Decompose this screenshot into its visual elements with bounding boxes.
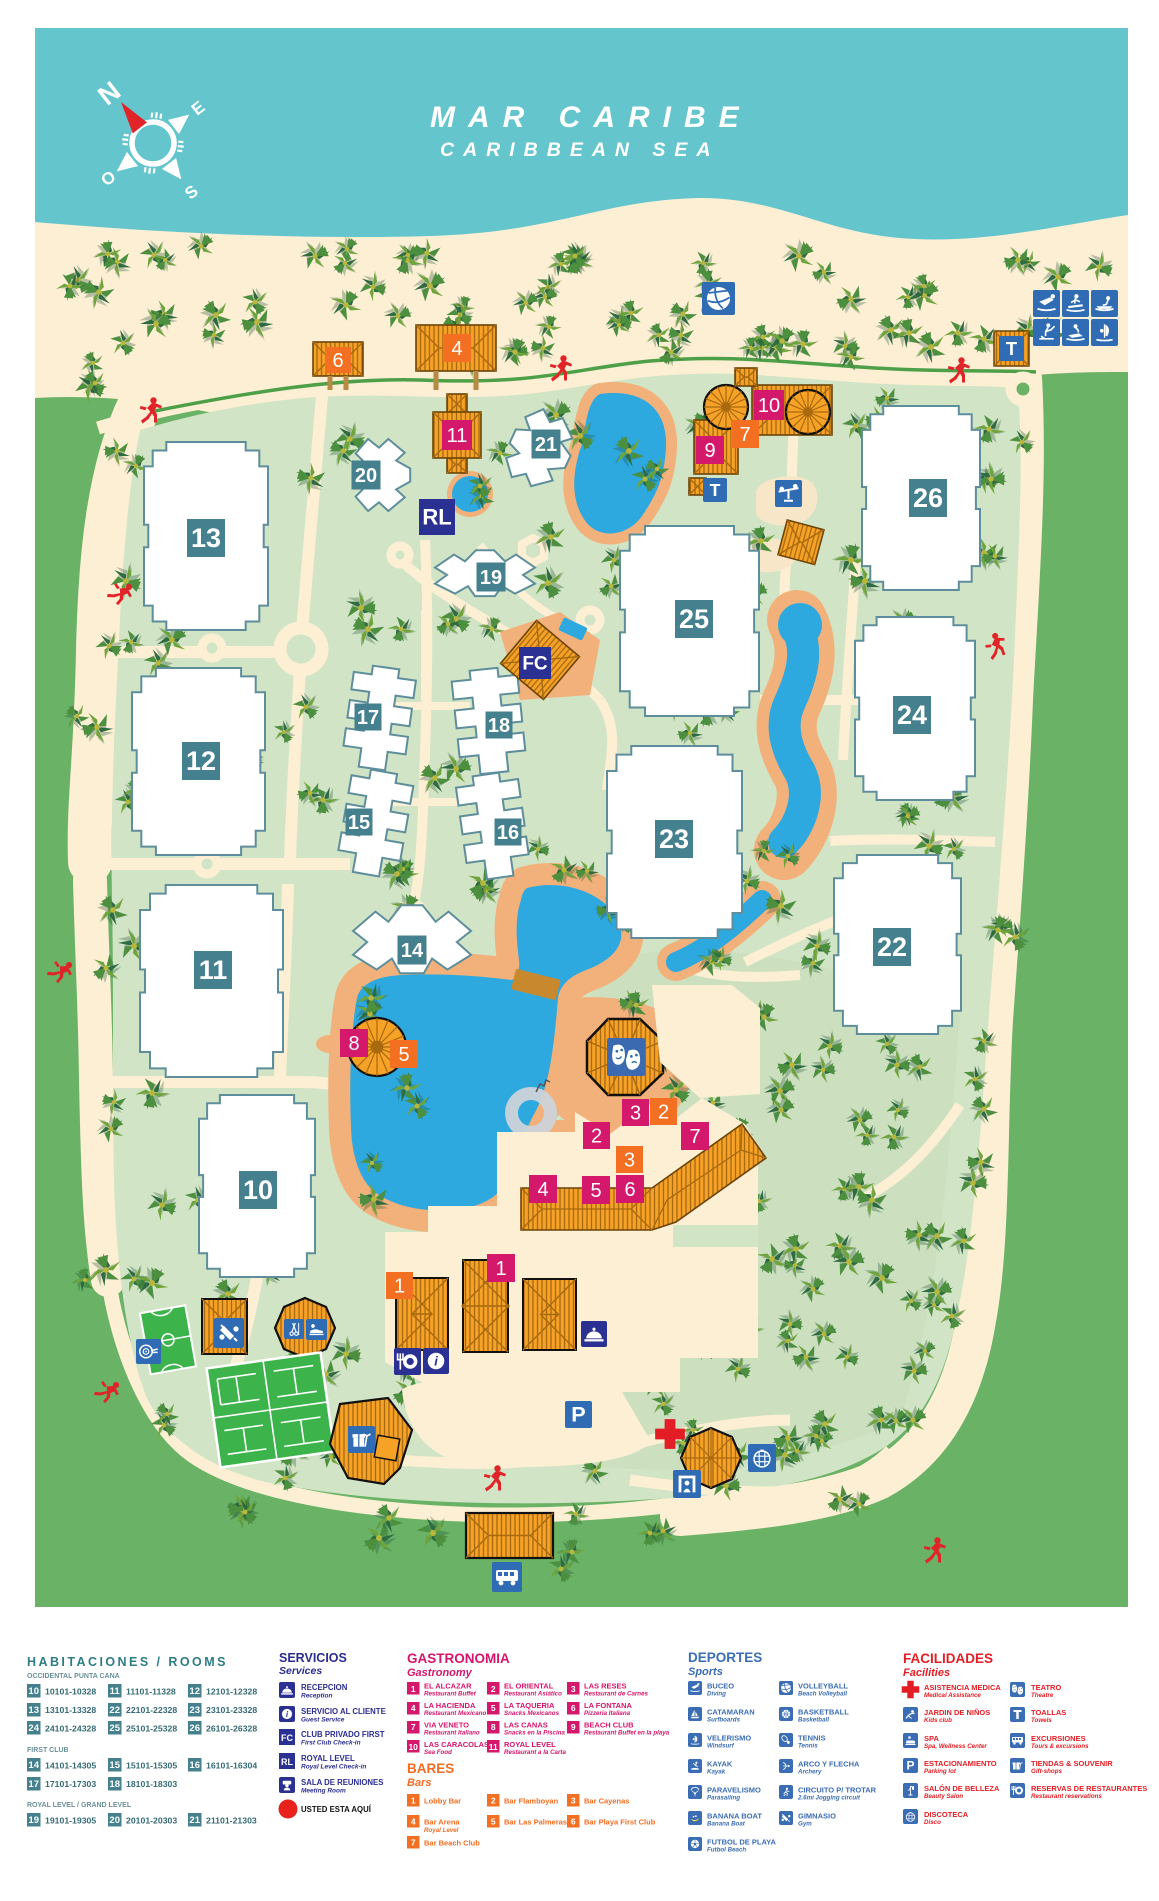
svg-text:25: 25 <box>679 604 709 634</box>
svg-text:LA FONTANA: LA FONTANA <box>584 1701 632 1710</box>
svg-text:11: 11 <box>447 425 468 447</box>
svg-text:SERVICIOS: SERVICIOS <box>279 1651 347 1665</box>
svg-text:FC: FC <box>281 1733 293 1743</box>
svg-text:Royal Level: Royal Level <box>424 1827 459 1834</box>
svg-text:ROYAL LEVEL: ROYAL LEVEL <box>301 1754 355 1763</box>
svg-text:1: 1 <box>394 1276 405 1298</box>
svg-text:7: 7 <box>739 424 750 446</box>
svg-text:First Club Check-in: First Club Check-in <box>301 1740 361 1747</box>
svg-text:17: 17 <box>357 707 379 729</box>
svg-text:T: T <box>710 480 721 500</box>
svg-text:SALÓN DE BELLEZA: SALÓN DE BELLEZA <box>924 1784 1000 1793</box>
svg-text:2: 2 <box>491 1796 496 1806</box>
svg-text:7: 7 <box>411 1838 416 1848</box>
svg-text:Bar Playa First Club: Bar Playa First Club <box>584 1818 656 1827</box>
svg-text:ROYAL LEVEL / GRAND LEVEL: ROYAL LEVEL / GRAND LEVEL <box>27 1802 132 1809</box>
svg-text:CATAMARAN: CATAMARAN <box>707 1708 755 1717</box>
svg-text:Gift-shops: Gift-shops <box>1031 1768 1062 1775</box>
svg-text:VOLLEYBALL: VOLLEYBALL <box>798 1682 848 1691</box>
svg-text:Bars: Bars <box>407 1777 431 1789</box>
svg-text:10: 10 <box>28 1686 39 1697</box>
svg-text:25: 25 <box>109 1723 120 1734</box>
svg-text:LA TAQUERIA: LA TAQUERIA <box>504 1701 555 1710</box>
svg-text:12: 12 <box>186 746 216 776</box>
svg-text:20101-20303: 20101-20303 <box>126 1816 177 1826</box>
svg-text:EXCURSIONES: EXCURSIONES <box>1031 1734 1086 1743</box>
svg-text:5: 5 <box>398 1044 409 1066</box>
svg-text:Spa, Wellness Center: Spa, Wellness Center <box>924 1743 987 1750</box>
svg-text:CLUB PRIVADO FIRST: CLUB PRIVADO FIRST <box>301 1730 385 1739</box>
svg-text:1: 1 <box>495 1258 506 1280</box>
svg-text:Beach Volleyball: Beach Volleyball <box>798 1691 847 1698</box>
svg-text:16: 16 <box>497 822 519 844</box>
svg-text:RL: RL <box>422 505 451 530</box>
svg-text:TENNIS: TENNIS <box>798 1734 826 1743</box>
svg-text:JARDIN DE NIÑOS: JARDIN DE NIÑOS <box>924 1708 990 1717</box>
svg-text:19101-19305: 19101-19305 <box>45 1816 96 1826</box>
svg-text:3: 3 <box>624 1150 635 1172</box>
svg-text:21101-21303: 21101-21303 <box>206 1816 257 1826</box>
svg-text:Services: Services <box>279 1665 322 1677</box>
svg-text:4: 4 <box>451 338 462 360</box>
svg-text:7: 7 <box>689 1126 700 1148</box>
svg-text:11: 11 <box>489 1742 498 1752</box>
svg-text:VIA VENETO: VIA VENETO <box>424 1721 469 1730</box>
svg-text:9: 9 <box>571 1722 576 1732</box>
svg-text:Restaurant a la Carta: Restaurant a la Carta <box>504 1749 566 1756</box>
svg-text:24101-24328: 24101-24328 <box>45 1724 96 1734</box>
svg-text:16: 16 <box>189 1760 200 1771</box>
svg-text:20: 20 <box>355 465 377 487</box>
svg-text:Disco: Disco <box>924 1819 941 1826</box>
svg-text:KAYAK: KAYAK <box>707 1760 733 1769</box>
svg-text:22: 22 <box>877 932 907 962</box>
svg-text:13: 13 <box>28 1705 39 1716</box>
svg-text:26: 26 <box>913 483 943 513</box>
svg-text:14: 14 <box>401 940 424 962</box>
svg-text:TOALLAS: TOALLAS <box>1031 1708 1066 1717</box>
svg-text:Basketball: Basketball <box>798 1717 829 1724</box>
svg-text:Futbol Beach: Futbol Beach <box>707 1847 746 1854</box>
svg-text:Bar Las Palmeras: Bar Las Palmeras <box>504 1818 567 1827</box>
svg-text:2: 2 <box>591 1126 602 1148</box>
svg-text:2.6mi Jogging circuit: 2.6mi Jogging circuit <box>797 1795 861 1802</box>
svg-text:6: 6 <box>571 1703 576 1713</box>
svg-text:2: 2 <box>658 1102 669 1124</box>
svg-text:FC: FC <box>522 654 548 675</box>
svg-text:Archery: Archery <box>797 1769 822 1776</box>
svg-text:ASISTENCIA MEDICA: ASISTENCIA MEDICA <box>924 1683 1001 1692</box>
svg-text:6: 6 <box>624 1179 635 1201</box>
svg-text:Kids club: Kids club <box>924 1717 952 1724</box>
svg-text:SALA DE REUNIONES: SALA DE REUNIONES <box>301 1778 383 1787</box>
svg-text:GASTRONOMIA: GASTRONOMIA <box>407 1651 510 1666</box>
svg-text:2: 2 <box>491 1684 496 1694</box>
svg-text:Tennis: Tennis <box>798 1743 818 1750</box>
svg-text:3: 3 <box>571 1796 576 1806</box>
svg-text:RL: RL <box>281 1757 293 1767</box>
svg-text:1: 1 <box>411 1796 416 1806</box>
svg-text:T: T <box>1006 338 1017 359</box>
svg-text:12101-12328: 12101-12328 <box>206 1687 257 1697</box>
svg-text:FUTBOL DE PLAYA: FUTBOL DE PLAYA <box>707 1838 776 1847</box>
svg-text:P: P <box>906 1759 914 1773</box>
svg-text:OCCIDENTAL PUNTA CANA: OCCIDENTAL PUNTA CANA <box>27 1673 120 1680</box>
svg-text:Bar Cayenas: Bar Cayenas <box>584 1797 629 1806</box>
svg-text:Restaurant de Carnes: Restaurant de Carnes <box>584 1691 649 1698</box>
svg-text:15: 15 <box>348 812 370 834</box>
svg-text:12: 12 <box>189 1686 200 1697</box>
svg-text:24: 24 <box>897 700 927 730</box>
svg-text:P: P <box>571 1402 585 1427</box>
svg-text:LAS RESES: LAS RESES <box>584 1682 627 1691</box>
svg-text:Meeting Room: Meeting Room <box>301 1788 346 1795</box>
svg-text:Restaurant Buffet: Restaurant Buffet <box>424 1691 477 1698</box>
svg-text:TEATRO: TEATRO <box>1031 1683 1061 1692</box>
svg-text:Snacks en la Piscina: Snacks en la Piscina <box>504 1730 565 1737</box>
svg-text:11101-11328: 11101-11328 <box>126 1687 176 1697</box>
svg-text:LA HACIENDA: LA HACIENDA <box>424 1701 476 1710</box>
svg-text:GIMNASIO: GIMNASIO <box>798 1812 836 1821</box>
svg-text:Tours & excursions: Tours & excursions <box>1031 1743 1089 1750</box>
svg-text:Bar Arena: Bar Arena <box>424 1818 460 1827</box>
svg-text:14101-14305: 14101-14305 <box>45 1761 96 1771</box>
svg-text:20: 20 <box>109 1815 120 1826</box>
svg-text:CARIBBEAN SEA: CARIBBEAN SEA <box>440 139 720 161</box>
svg-text:3: 3 <box>630 1103 641 1125</box>
svg-text:Restaurant Buffet en la playa: Restaurant Buffet en la playa <box>584 1730 670 1737</box>
svg-text:Gastronomy: Gastronomy <box>407 1667 473 1679</box>
svg-text:BUCEO: BUCEO <box>707 1682 734 1691</box>
svg-text:i: i <box>434 1354 438 1369</box>
svg-text:19: 19 <box>480 567 502 589</box>
svg-text:Restaurant Italiano: Restaurant Italiano <box>424 1730 480 1737</box>
svg-text:ARCO Y FLECHA: ARCO Y FLECHA <box>798 1760 860 1769</box>
svg-text:RESERVAS DE RESTAURANTES: RESERVAS DE RESTAURANTES <box>1031 1784 1147 1793</box>
svg-text:Sports: Sports <box>688 1666 723 1678</box>
svg-text:6: 6 <box>332 350 343 372</box>
svg-text:MAR CARIBE: MAR CARIBE <box>430 101 752 134</box>
svg-text:17101-17303: 17101-17303 <box>45 1779 96 1789</box>
svg-text:10: 10 <box>243 1175 273 1205</box>
svg-text:FACILIDADES: FACILIDADES <box>903 1651 993 1666</box>
svg-text:BANANA BOAT: BANANA BOAT <box>707 1812 762 1821</box>
svg-text:Theatre: Theatre <box>1031 1692 1054 1699</box>
svg-text:Reception: Reception <box>301 1693 332 1700</box>
svg-text:15: 15 <box>109 1760 120 1771</box>
svg-text:1: 1 <box>411 1684 416 1694</box>
svg-text:11: 11 <box>199 955 228 985</box>
svg-text:Diving: Diving <box>707 1691 726 1698</box>
svg-text:Windsurf: Windsurf <box>707 1743 735 1750</box>
svg-text:VELERISMO: VELERISMO <box>707 1734 751 1743</box>
svg-text:Facilities: Facilities <box>903 1667 950 1679</box>
svg-text:16101-16304: 16101-16304 <box>206 1761 257 1771</box>
svg-text:14: 14 <box>28 1760 39 1771</box>
svg-text:TIENDAS & SOUVENIR: TIENDAS & SOUVENIR <box>1031 1759 1113 1768</box>
svg-text:SERVICIO AL CLIENTE: SERVICIO AL CLIENTE <box>301 1707 386 1716</box>
svg-text:BEACH CLUB: BEACH CLUB <box>584 1721 634 1730</box>
svg-text:Kayak: Kayak <box>707 1769 726 1776</box>
svg-text:7: 7 <box>411 1722 416 1732</box>
svg-text:19: 19 <box>28 1815 39 1826</box>
svg-text:RECEPCION: RECEPCION <box>301 1683 348 1692</box>
svg-text:DEPORTES: DEPORTES <box>688 1650 762 1665</box>
svg-text:21: 21 <box>189 1815 200 1826</box>
svg-text:CIRCUITO P/ TROTAR: CIRCUITO P/ TROTAR <box>798 1786 877 1795</box>
svg-text:Gym: Gym <box>798 1821 812 1828</box>
svg-text:17: 17 <box>28 1779 39 1790</box>
svg-text:EL ORIENTAL: EL ORIENTAL <box>504 1682 554 1691</box>
svg-text:Surfboards: Surfboards <box>707 1717 741 1724</box>
svg-text:4: 4 <box>411 1817 416 1827</box>
svg-text:Towels: Towels <box>1031 1717 1052 1724</box>
svg-text:8: 8 <box>348 1033 359 1055</box>
svg-text:23: 23 <box>189 1705 200 1716</box>
svg-text:EL ALCAZAR: EL ALCAZAR <box>424 1682 472 1691</box>
svg-text:ROYAL LEVEL: ROYAL LEVEL <box>504 1740 556 1749</box>
svg-text:18: 18 <box>488 715 510 737</box>
svg-text:LAS CANAS: LAS CANAS <box>504 1721 548 1730</box>
svg-text:10101-10328: 10101-10328 <box>45 1687 96 1697</box>
svg-text:LAS CARACOLAS: LAS CARACOLAS <box>424 1740 489 1749</box>
svg-text:Beauty Salon: Beauty Salon <box>924 1793 963 1800</box>
svg-text:22101-22328: 22101-22328 <box>126 1705 177 1715</box>
svg-text:13101-13328: 13101-13328 <box>45 1705 96 1715</box>
svg-text:BASKETBALL: BASKETBALL <box>798 1708 849 1717</box>
svg-text:22: 22 <box>109 1705 120 1716</box>
svg-text:Parasailing: Parasailing <box>707 1795 740 1802</box>
svg-text:FIRST CLUB: FIRST CLUB <box>27 1747 69 1754</box>
svg-text:10: 10 <box>408 1742 418 1752</box>
svg-text:25101-25328: 25101-25328 <box>126 1724 177 1734</box>
svg-text:Restaurant Asiático: Restaurant Asiático <box>504 1691 562 1698</box>
svg-text:Banana Boat: Banana Boat <box>707 1821 746 1828</box>
svg-text:Royal Level Check-in: Royal Level Check-in <box>301 1764 366 1771</box>
svg-text:26101-26328: 26101-26328 <box>206 1724 257 1734</box>
svg-text:21: 21 <box>535 434 557 456</box>
svg-text:PARAVELISMO: PARAVELISMO <box>707 1786 761 1795</box>
svg-text:Lobby Bar: Lobby Bar <box>424 1797 461 1806</box>
svg-text:SPA: SPA <box>924 1734 939 1743</box>
svg-text:Bar Flamboyan: Bar Flamboyan <box>504 1797 559 1806</box>
svg-text:Snacks Mexicanos: Snacks Mexicanos <box>504 1710 560 1717</box>
svg-text:18: 18 <box>109 1779 120 1790</box>
svg-text:13: 13 <box>191 523 221 553</box>
svg-text:11: 11 <box>110 1686 121 1697</box>
svg-text:Guest Service: Guest Service <box>301 1717 345 1724</box>
svg-text:USTED ESTA AQUÍ: USTED ESTA AQUÍ <box>301 1805 372 1814</box>
svg-text:Parking lot: Parking lot <box>924 1768 957 1775</box>
svg-text:5: 5 <box>491 1703 496 1713</box>
svg-text:24: 24 <box>28 1723 39 1734</box>
svg-text:Medical Assistance: Medical Assistance <box>924 1692 981 1699</box>
svg-text:BARES: BARES <box>407 1761 454 1776</box>
svg-text:18101-18303: 18101-18303 <box>126 1779 177 1789</box>
svg-text:6: 6 <box>571 1817 576 1827</box>
svg-text:10: 10 <box>758 395 780 417</box>
svg-text:9: 9 <box>704 440 715 462</box>
svg-text:Pizzeria Italiana: Pizzeria Italiana <box>584 1710 631 1717</box>
svg-text:3: 3 <box>571 1684 576 1694</box>
svg-text:8: 8 <box>491 1722 496 1732</box>
svg-text:ESTACIONAMIENTO: ESTACIONAMIENTO <box>924 1759 997 1768</box>
svg-text:HABITACIONES / ROOMS: HABITACIONES / ROOMS <box>27 1655 228 1669</box>
svg-text:Bar Beach Club: Bar Beach Club <box>424 1839 480 1848</box>
svg-text:Restaurant reservations: Restaurant reservations <box>1031 1793 1102 1800</box>
svg-text:DISCOTECA: DISCOTECA <box>924 1810 969 1819</box>
svg-text:26: 26 <box>189 1723 200 1734</box>
svg-text:5: 5 <box>491 1817 496 1827</box>
svg-text:4: 4 <box>411 1703 416 1713</box>
svg-text:Sea Food: Sea Food <box>424 1749 452 1756</box>
svg-text:15101-15305: 15101-15305 <box>126 1761 177 1771</box>
svg-text:Restaurant Mexicano: Restaurant Mexicano <box>424 1710 486 1717</box>
svg-text:23: 23 <box>659 824 689 854</box>
svg-text:4: 4 <box>537 1179 548 1201</box>
svg-text:23101-23328: 23101-23328 <box>206 1705 257 1715</box>
svg-text:5: 5 <box>590 1180 601 1202</box>
